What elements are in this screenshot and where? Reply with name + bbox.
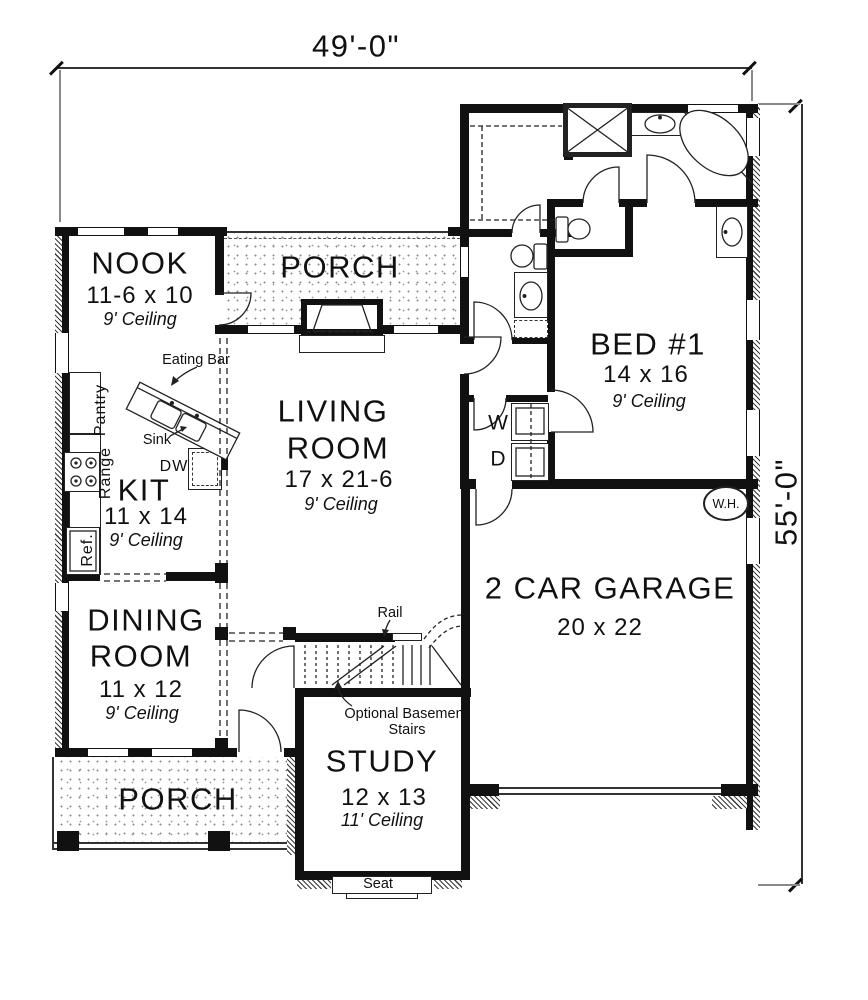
floor-plan-canvas: W.H. xyxy=(0,0,868,1000)
room-size-nook: 11-6 x 10 xyxy=(86,284,193,308)
room-size-dining: 11 x 12 xyxy=(99,678,183,702)
room-ceiling-nook: 9' Ceiling xyxy=(103,310,176,328)
room-name-porch-top: PORCH xyxy=(280,252,399,283)
room-name-dining-1: DINING xyxy=(87,605,205,636)
kitchen-island xyxy=(126,382,239,460)
room-ceiling-dining: 9' Ceiling xyxy=(105,704,178,722)
washer-dryer-inner xyxy=(516,404,544,480)
fireplace-firebox xyxy=(307,305,377,332)
room-size-kitchen: 11 x 14 xyxy=(104,505,188,529)
shower-x-icon xyxy=(566,107,629,153)
ref-label: Ref. xyxy=(80,533,96,566)
room-name-nook: NOOK xyxy=(91,248,188,279)
stair-treads xyxy=(305,645,461,685)
pantry-label: Pantry xyxy=(93,384,109,436)
washer-label: W xyxy=(488,413,508,434)
range-label: Range xyxy=(98,447,114,499)
room-ceiling-kitchen: 9' Ceiling xyxy=(109,531,182,549)
range-burners xyxy=(71,458,96,486)
water-heater-label: W.H. xyxy=(712,497,739,511)
rail-label: Rail xyxy=(378,606,403,621)
room-name-dining-2: ROOM xyxy=(90,641,192,672)
room-name-living-2: ROOM xyxy=(287,433,389,464)
room-size-study: 12 x 13 xyxy=(341,786,427,810)
room-ceiling-living: 9' Ceiling xyxy=(304,495,377,513)
garden-tub xyxy=(668,98,761,189)
room-size-garage: 20 x 22 xyxy=(557,616,643,640)
stairs-note-line2: Stairs xyxy=(388,723,425,738)
toilets xyxy=(511,217,590,269)
stair-rail-curves xyxy=(424,615,461,648)
room-name-kitchen: KIT xyxy=(118,475,171,506)
seat-label: Seat xyxy=(363,877,393,892)
room-name-garage: 2 CAR GARAGE xyxy=(485,573,736,604)
eating-bar-label: Eating Bar xyxy=(162,353,230,368)
room-ceiling-study: 11' Ceiling xyxy=(341,811,423,829)
sink-label: Sink xyxy=(143,433,171,448)
room-name-porch-bottom: PORCH xyxy=(118,784,237,815)
dimension-height-label: 55'-0" xyxy=(771,458,802,546)
room-name-bed1: BED #1 xyxy=(590,329,706,360)
dimension-width-label: 49'-0" xyxy=(312,31,400,62)
room-ceiling-bed1: 9' Ceiling xyxy=(612,392,685,410)
water-heater: W.H. xyxy=(703,486,749,521)
dw-label: DW xyxy=(160,459,189,475)
room-size-living: 17 x 21-6 xyxy=(284,468,393,492)
room-name-study: STUDY xyxy=(326,746,439,777)
closet-shelves xyxy=(470,126,562,220)
room-name-living-1: LIVING xyxy=(278,396,389,427)
room-size-bed1: 14 x 16 xyxy=(603,363,689,387)
dryer-label: D xyxy=(490,449,505,470)
stairs-note-line1: Optional Basemen xyxy=(344,707,463,722)
